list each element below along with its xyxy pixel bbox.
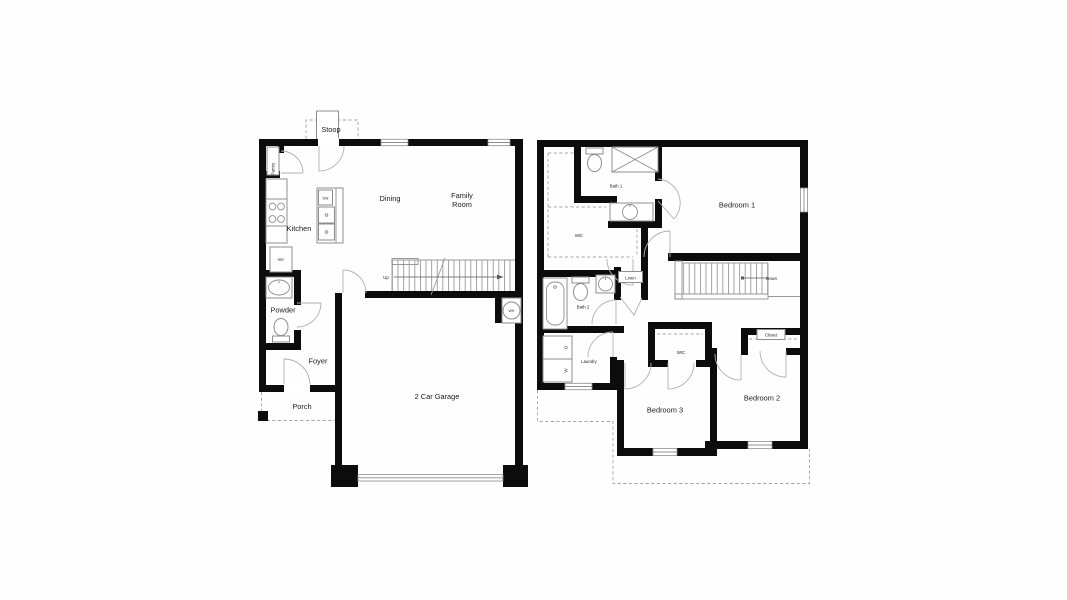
- bedroom3-wic-door: [668, 363, 694, 389]
- room-label-dining: Dining: [380, 194, 401, 203]
- foyer-door: [284, 359, 310, 384]
- dryer-icon: D: [543, 336, 572, 359]
- svg-text:D: D: [564, 346, 569, 349]
- second-floor-windows: [565, 188, 808, 456]
- floorplan-canvas: Stoop Pantry Kitchen Dining Family Room …: [0, 0, 1067, 600]
- window: [748, 441, 772, 448]
- label-up: Up: [383, 275, 389, 280]
- room-label-family: Family: [451, 191, 473, 200]
- bathtub-icon: [543, 278, 567, 329]
- window: [800, 188, 807, 212]
- room-label-family-room: Room: [452, 200, 472, 209]
- powder-sink-icon: [266, 277, 292, 298]
- second-floor-plan: D W Bath 1 Bedroom 1 WIC Linen Bath 2 La…: [537, 140, 810, 484]
- bedroom2-door: [715, 354, 741, 380]
- room-label-bath2: Bath 2: [577, 305, 590, 310]
- room-label-bath1: Bath 1: [610, 184, 623, 189]
- label-wh: WH: [509, 309, 515, 313]
- bath1-toilet-icon: [586, 148, 603, 172]
- room-label-bedroom1: Bedroom 1: [719, 201, 755, 210]
- room-label-porch: Porch: [292, 402, 311, 411]
- room-label-bedroom3: Bedroom 3: [647, 406, 683, 415]
- room-label-powder: Powder: [270, 306, 296, 315]
- room-label-bedroom2: Bedroom 2: [744, 394, 780, 403]
- first-floor-walls: [259, 139, 528, 487]
- label-ref: REF: [278, 258, 285, 262]
- down-arrow-dot: [741, 277, 744, 280]
- label-down: Down: [766, 276, 778, 281]
- shower-icon: [612, 147, 658, 172]
- first-floor-plan: Stoop Pantry Kitchen Dining Family Room …: [258, 111, 528, 487]
- label-closet: Closet: [765, 333, 778, 338]
- closet-shelving: [548, 153, 797, 339]
- bedroom2-closet-door: [760, 351, 786, 377]
- room-label-wic-bedroom3: WIC: [677, 350, 685, 355]
- bedroom3-door: [625, 363, 651, 389]
- room-label-foyer: Foyer: [309, 357, 328, 366]
- stove-icon: [266, 199, 287, 226]
- bath2-sink-icon: [596, 275, 615, 293]
- bath2-toilet-icon: [572, 277, 589, 301]
- window: [565, 383, 592, 389]
- kitchen-sink-icon: [319, 207, 335, 240]
- bath1-sink-icon: [610, 203, 653, 221]
- garage-entry-door: [343, 270, 366, 293]
- kitchen-island: [317, 188, 343, 243]
- room-label-pantry: Pantry: [271, 162, 276, 175]
- window: [653, 448, 677, 455]
- label-linen: Linen: [625, 276, 636, 281]
- window: [381, 139, 408, 145]
- room-label-kitchen: Kitchen: [287, 224, 312, 233]
- stairs-up: [392, 258, 515, 295]
- porch-post: [258, 411, 268, 421]
- stairs-down: [675, 261, 800, 299]
- garage-door: [358, 475, 503, 482]
- pantry-door: [281, 151, 303, 173]
- washer-icon: W: [543, 359, 572, 382]
- linen-door: [620, 297, 642, 315]
- room-label-laundry: Laundry: [581, 359, 597, 364]
- kitchen-counter: [266, 179, 287, 243]
- front-entry-door: [319, 146, 344, 171]
- room-label-stoop: Stoop: [321, 125, 340, 134]
- window: [488, 139, 510, 145]
- floorplan-drawing: Stoop Pantry Kitchen Dining Family Room …: [0, 0, 1067, 600]
- powder-toilet-icon: [273, 319, 290, 343]
- laundry-door: [588, 332, 613, 357]
- label-dw: DW: [323, 197, 329, 201]
- bath2-door: [592, 300, 616, 324]
- powder-door: [297, 303, 321, 327]
- room-label-garage: 2 Car Garage: [415, 392, 460, 401]
- footprint-outline: [538, 390, 810, 484]
- room-label-wic: WIC: [575, 233, 583, 238]
